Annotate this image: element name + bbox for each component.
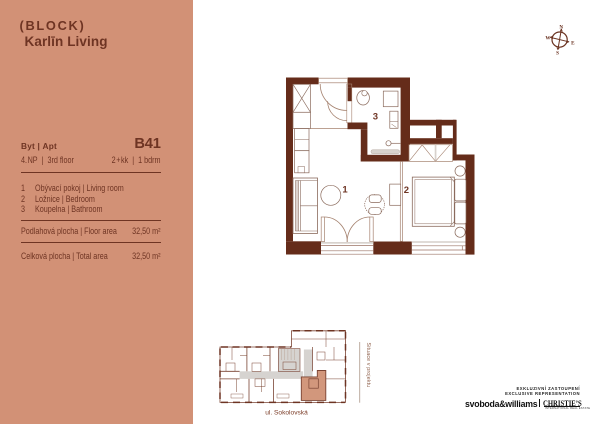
svg-text:E: E [571,41,575,47]
svg-text:S: S [556,50,559,56]
svg-text:ul. Sokolovská: ul. Sokolovská [265,409,308,416]
svg-text:1: 1 [342,184,348,195]
svg-text:3: 3 [373,112,378,123]
svg-text:Situace v projektu: Situace v projektu [365,343,371,388]
svg-text:2: 2 [404,185,409,196]
svg-text:N: N [559,25,563,31]
svg-text:W: W [545,35,551,41]
